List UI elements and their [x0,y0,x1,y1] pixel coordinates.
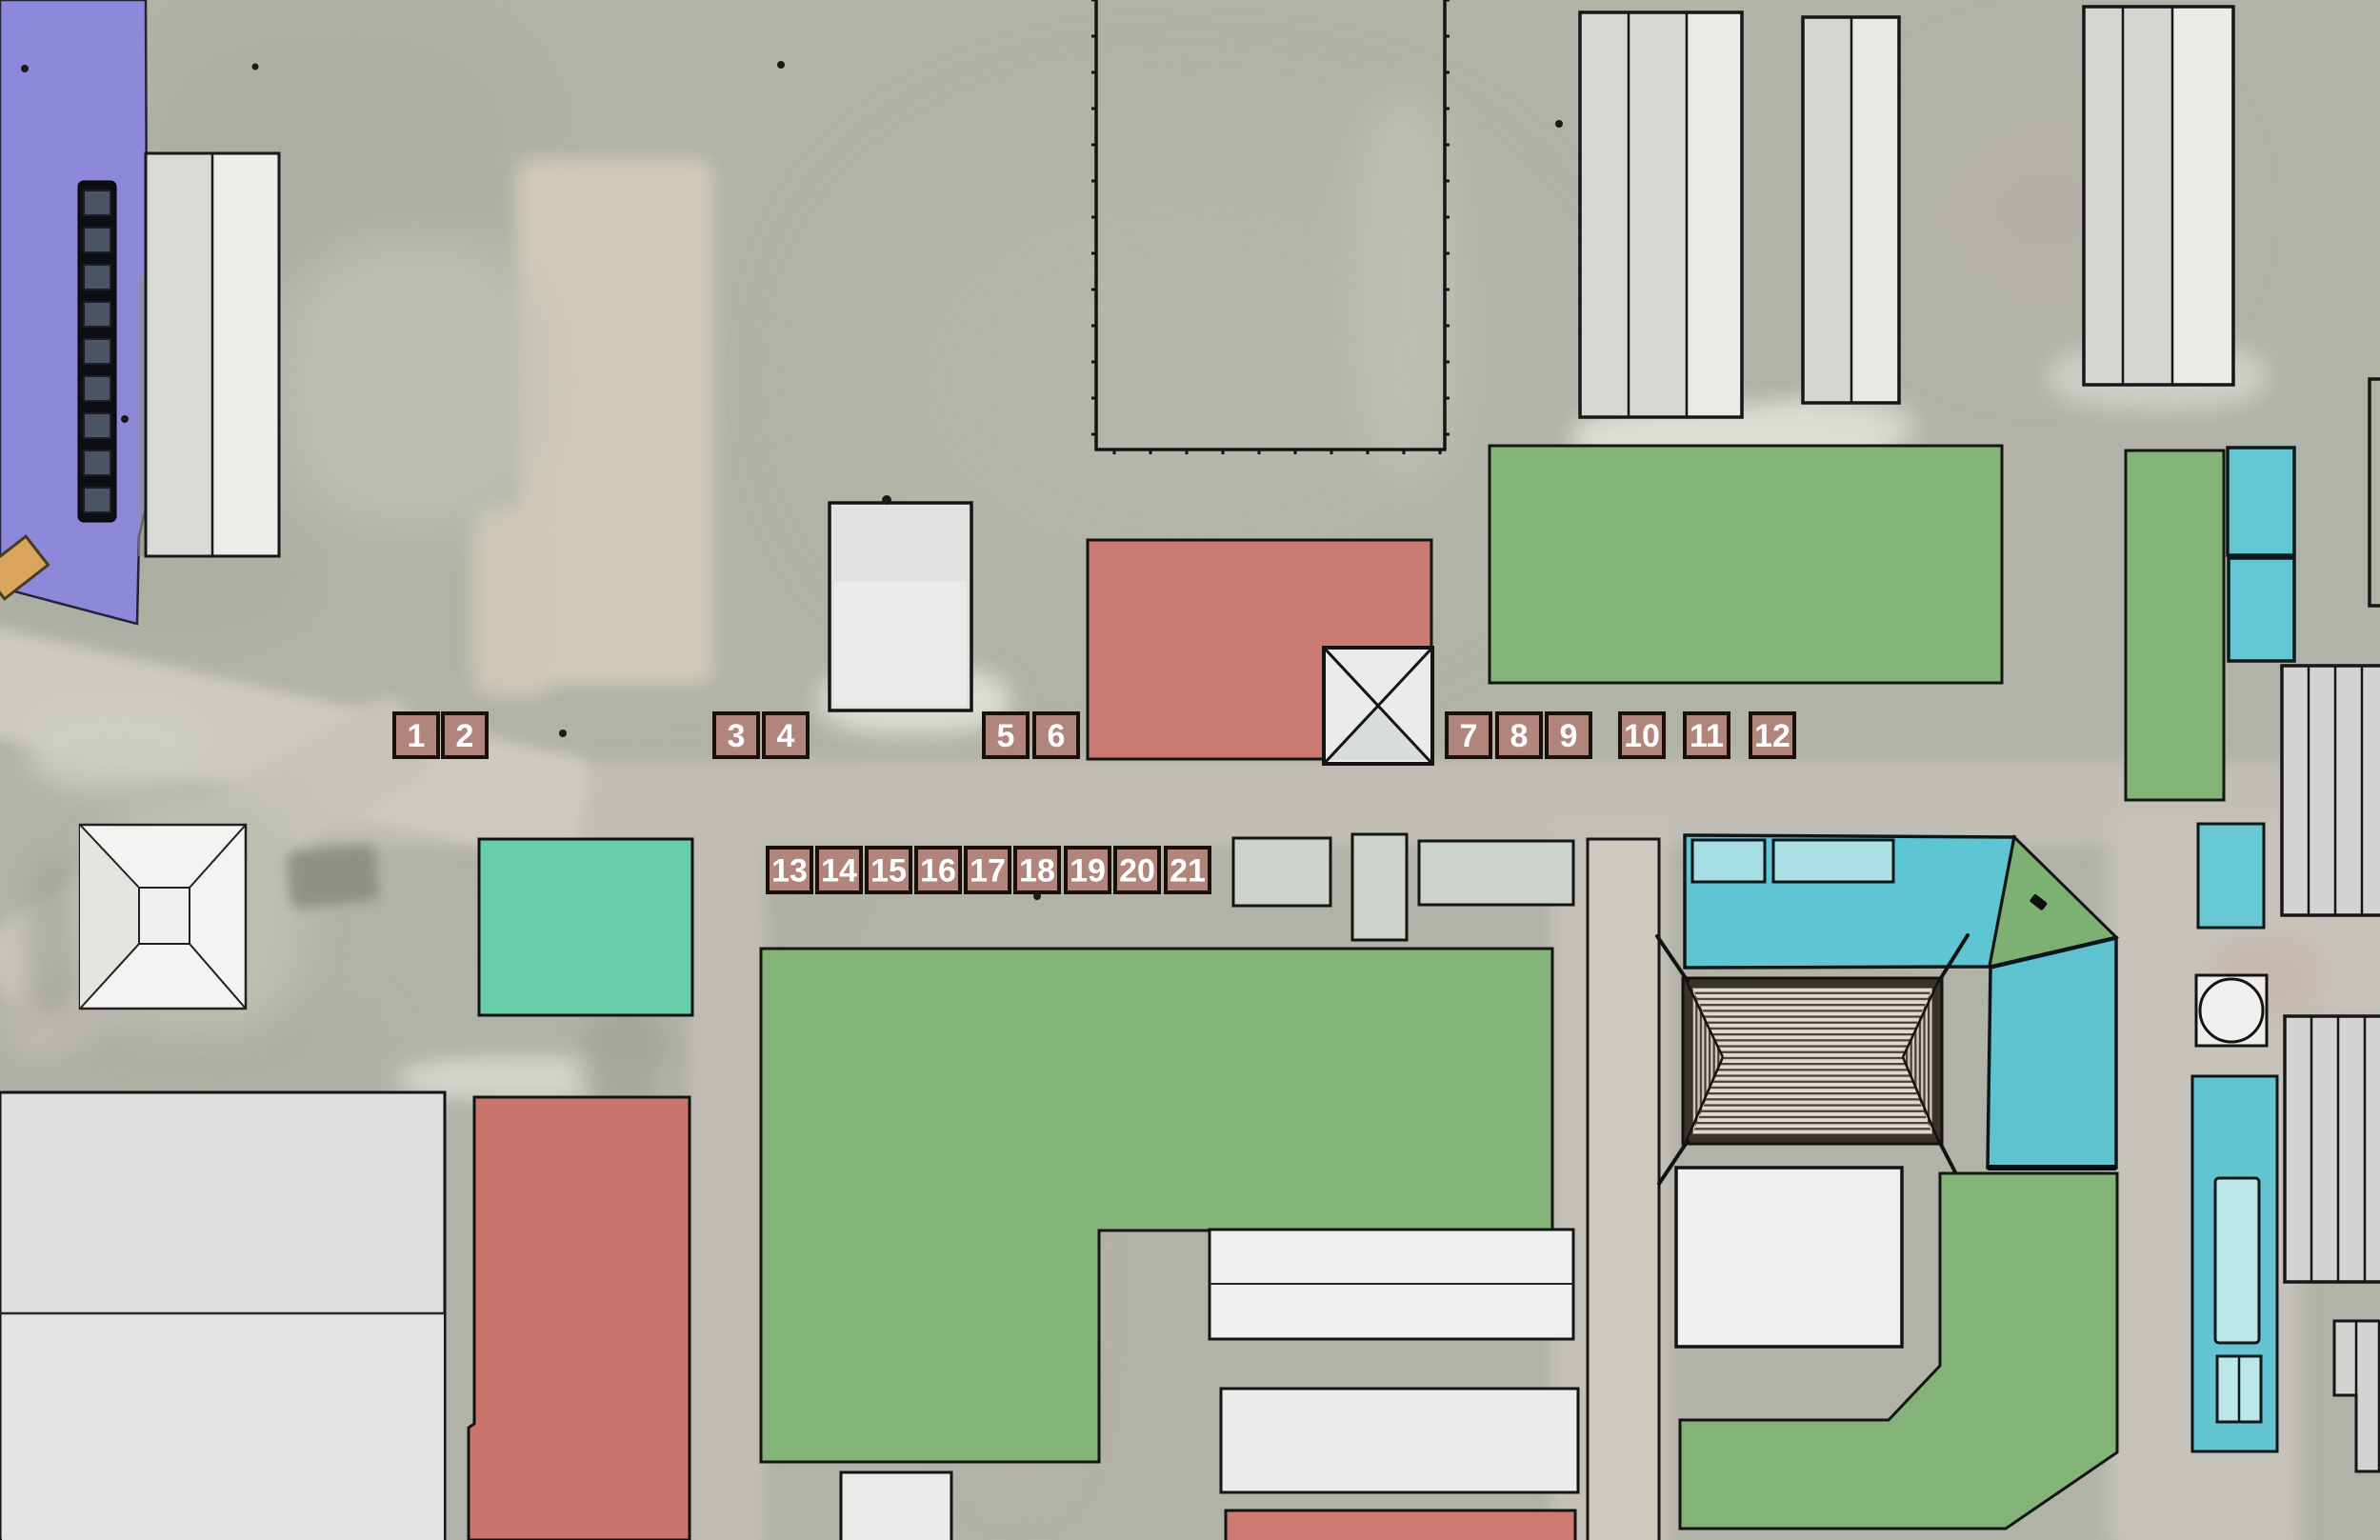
svg-text:9: 9 [1560,718,1578,754]
svg-text:21: 21 [1170,853,1206,890]
svg-text:18: 18 [1019,853,1055,890]
svg-text:6: 6 [1048,718,1066,754]
svg-text:15: 15 [870,853,907,890]
svg-text:16: 16 [920,853,956,890]
svg-text:12: 12 [1754,718,1790,754]
svg-text:2: 2 [456,718,474,754]
svg-text:11: 11 [1690,718,1724,754]
svg-text:1: 1 [408,718,426,754]
svg-text:4: 4 [777,718,795,754]
svg-text:5: 5 [997,718,1015,754]
svg-text:8: 8 [1510,718,1529,754]
svg-text:20: 20 [1119,853,1155,890]
svg-text:10: 10 [1624,718,1660,754]
svg-text:3: 3 [728,718,746,754]
svg-text:17: 17 [970,853,1006,890]
svg-text:19: 19 [1070,853,1106,890]
svg-text:7: 7 [1460,718,1478,754]
svg-text:14: 14 [821,853,857,890]
svg-text:13: 13 [771,853,808,890]
